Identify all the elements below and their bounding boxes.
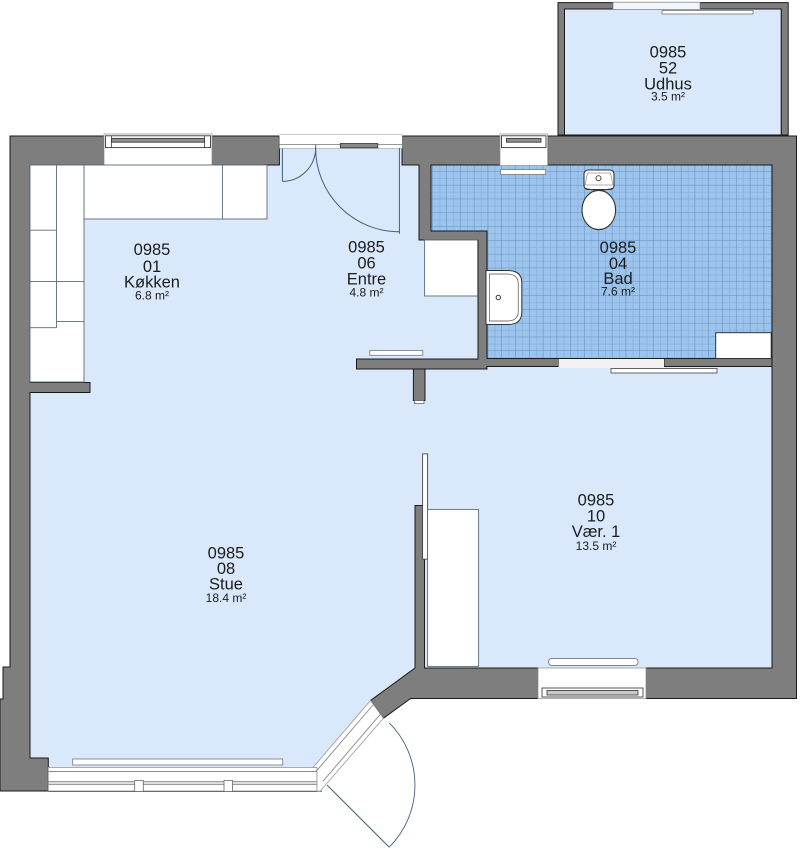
svg-text:7.6 m²: 7.6 m² [601,285,635,299]
svg-text:4.8 m²: 4.8 m² [349,286,383,300]
svg-text:3.5 m²: 3.5 m² [651,90,685,104]
svg-text:13.5 m²: 13.5 m² [576,539,617,553]
svg-text:18.4 m²: 18.4 m² [206,591,247,605]
svg-text:0985: 0985 [134,241,171,259]
svg-text:6.8 m²: 6.8 m² [135,289,169,303]
